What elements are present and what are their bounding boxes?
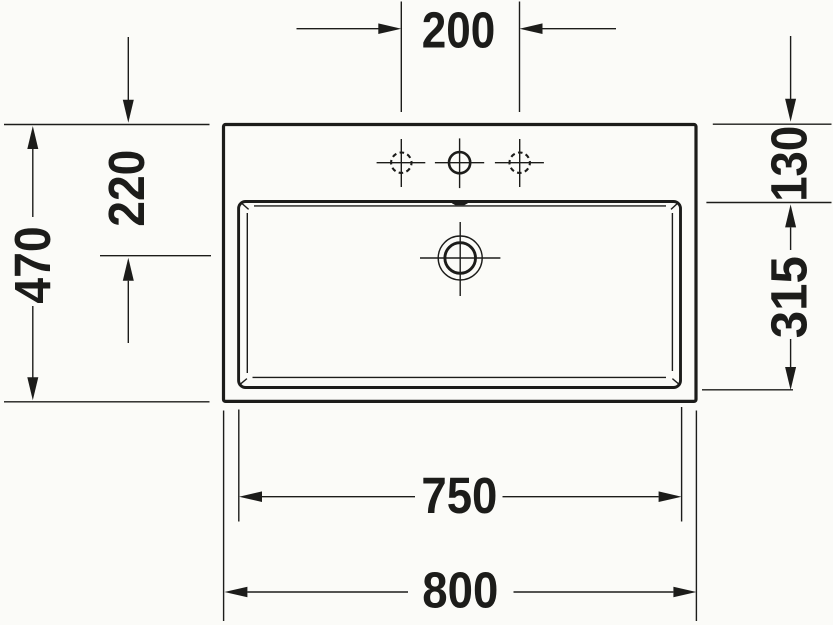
svg-text:470: 470 [4,226,61,304]
svg-text:130: 130 [761,126,818,202]
svg-text:750: 750 [421,467,497,524]
svg-text:200: 200 [422,1,496,58]
svg-text:800: 800 [422,561,498,618]
svg-text:220: 220 [98,150,155,227]
svg-text:315: 315 [761,256,818,338]
